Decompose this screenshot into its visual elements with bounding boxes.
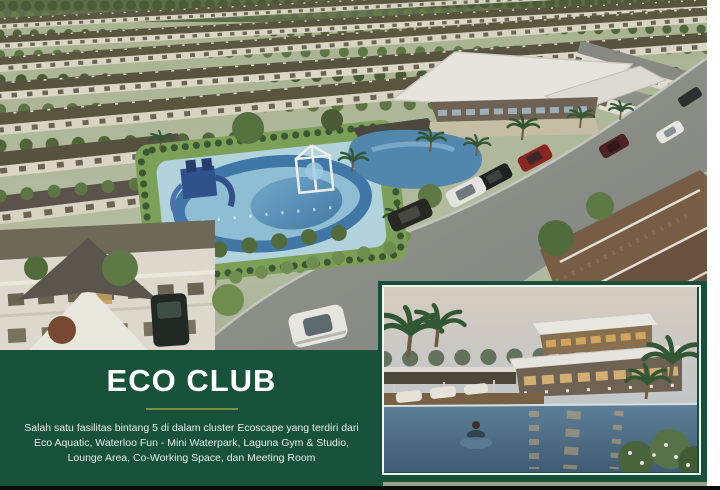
- banner-description-line-3: Lounge Area, Co-Working Space, dan Meeti…: [0, 451, 383, 466]
- eco-club-banner: ECO CLUB Salah satu fasilitas bintang 5 …: [0, 350, 383, 486]
- banner-title: ECO CLUB: [0, 363, 383, 399]
- bottom-black-bar: [0, 486, 720, 490]
- banner-description-line-2: Eco Aquatic, Waterloo Fun - Mini Waterpa…: [0, 436, 383, 451]
- inset-photo: [382, 285, 701, 475]
- clubhouse-dusk-render: [384, 287, 697, 472]
- promo-slide: ECO CLUB Salah satu fasilitas bintang 5 …: [0, 0, 720, 490]
- banner-divider: [146, 408, 238, 410]
- page-right-margin: [707, 0, 720, 486]
- inset-photo-frame: [378, 281, 707, 482]
- banner-description-line-1: Salah satu fasilitas bintang 5 di dalam …: [0, 421, 383, 436]
